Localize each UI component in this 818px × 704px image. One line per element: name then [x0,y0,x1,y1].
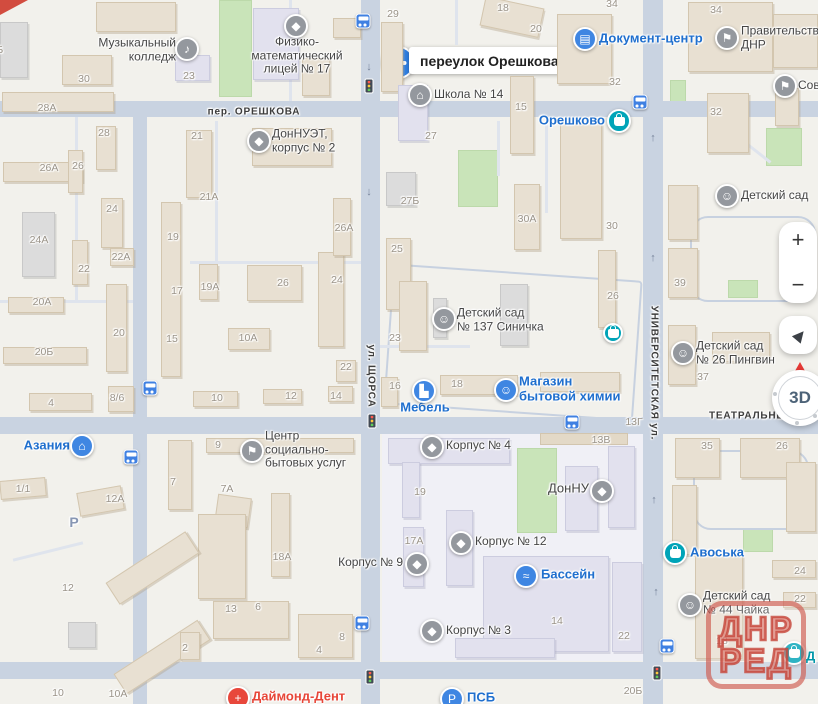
building-number: 26 [277,277,289,289]
building-number: 26А [335,222,354,234]
building-number: 20Б [0,44,3,56]
zoom-controls: + − [779,222,817,303]
bus-stop-icon[interactable] [124,450,139,465]
building-number: 12А [106,493,125,505]
building-number: 22А [112,251,131,263]
traffic-light-icon [368,414,377,429]
compass-3d-button[interactable]: 3D [772,370,818,426]
bus-stop-icon[interactable] [356,14,371,29]
korpus-12-icon[interactable]: ◆ [449,531,473,555]
kindergarten-icon[interactable]: ☺ [715,184,739,208]
green-area [458,150,498,207]
building-number: 26 [776,440,788,452]
building-number: 26 [72,160,84,172]
document-center-icon[interactable]: ▤ [573,27,597,51]
compass-disc[interactable]: 3D [772,370,818,426]
building-number: 13Г [625,416,642,428]
poi-label-korpus-4[interactable]: Корпус № 4 [446,439,511,453]
building-number: 26А [40,162,59,174]
household-chem-store-icon[interactable]: ☺ [494,378,518,402]
building-number: 27Б [401,195,420,207]
donnu-icon[interactable]: ◆ [590,479,614,503]
building [68,622,96,648]
building-number: 24 [794,565,806,577]
building [96,2,176,32]
street-label: УНИВЕРСИТЕТСКАЯ ул. [649,306,660,441]
building-number: 23 [183,70,195,82]
oneway-arrow-icon: ↑ [650,252,656,264]
building-number: 7А [221,483,234,495]
map-canvas[interactable]: переулок Орешкова ДНР РЕД + − ▶ 3D 3028А… [0,0,818,704]
bus-stop-icon[interactable] [633,95,648,110]
building-number: 24А [30,234,49,246]
building [455,638,555,658]
building [168,440,192,510]
building-number: 21 [191,130,203,142]
fizmat-lyceum-17-icon[interactable]: ◆ [284,14,308,38]
poi-label-social-services-center[interactable]: Центрсоциально-бытовых услуг [265,430,346,471]
building-number: 22 [78,263,90,275]
building-number: 9 [215,439,221,451]
building-number: 37 [697,371,709,383]
building-number: 30А [518,213,537,225]
road [133,101,147,704]
building [106,531,200,605]
bassein-icon[interactable]: ≈ [514,564,538,588]
building [707,93,749,153]
poi-label-korpus-12[interactable]: Корпус № 12 [475,535,547,549]
building [399,281,427,351]
poi-label-diamond-dent[interactable]: Даймонд-Дент [252,690,345,704]
poi-label-korpus-9[interactable]: Корпус № 9 [338,556,403,570]
school-14-icon[interactable]: ⌂ [408,83,432,107]
poi-label-korpus-3[interactable]: Корпус № 3 [446,624,511,638]
parking-label: Р [69,514,78,530]
building-number: 17 [171,285,183,297]
building-number: 30 [78,73,90,85]
minor-path [455,0,458,45]
callout-label: переулок Орешкова [420,53,559,69]
social-services-center-icon[interactable]: ⚑ [240,439,264,463]
bus-stop-icon[interactable] [565,415,580,430]
watermark-line2: РЕД [719,645,793,677]
building-number: 1/1 [16,483,31,495]
poi-label-kindergarten-137-sinichka[interactable]: Детский сад№ 137 Синичка [457,306,544,333]
building-number: 34 [710,4,722,16]
building-number: 7 [170,476,176,488]
poi-label-household-chem-store[interactable]: Магазинбытовой химии [519,374,620,403]
building-number: 18А [273,551,292,563]
compass-tick [773,392,777,396]
building [786,462,816,532]
oneway-arrow-icon: ↑ [653,586,659,598]
building [0,22,28,78]
mebel-icon[interactable]: ▙ [412,379,436,403]
building-number: 19 [167,231,179,243]
building-number: 16 [389,380,401,392]
building-number: 28 [98,127,110,139]
poi-label-kindergarten-26-pingvin[interactable]: Детский сад№ 26 Пингвин [696,339,775,366]
bus-stop-icon[interactable] [355,616,370,631]
building-number: 30 [606,220,618,232]
building [510,76,534,154]
korpus-9-icon[interactable]: ◆ [405,552,429,576]
compass-tick [795,421,799,425]
avoska-icon[interactable] [663,541,687,565]
poi-label-kindergarten[interactable]: Детский сад [741,189,808,203]
building-number: 15 [166,333,178,345]
shop-pin-icon[interactable] [603,323,623,343]
building-number: 4 [48,397,54,409]
bag-icon [608,329,619,338]
poi-label-oreshkovo-store[interactable]: Орешково [539,114,605,129]
building-number: 8 [339,631,345,643]
korpus-4-icon[interactable]: ◆ [420,435,444,459]
building [668,248,698,298]
building [668,185,698,240]
building-number: 12 [62,582,74,594]
building-number: 10А [109,688,128,700]
location-arrow-icon: ▶ [789,325,810,345]
building-number: 2 [182,642,188,654]
poi-label-d-store[interactable]: Д [806,650,815,665]
building-number: 20А [33,296,52,308]
sovet-icon[interactable]: ⚑ [773,74,797,98]
building-number: 22 [618,630,630,642]
building-number: 20 [113,327,125,339]
building-number: 18 [451,378,463,390]
bag-icon [670,549,681,558]
building-number: 14 [330,390,342,402]
building-number: 34 [606,0,618,10]
oneway-arrow-icon: ↑ [650,132,656,144]
compass-tick [813,414,817,418]
building-number: 20 [530,23,542,35]
building-number: 25 [391,243,403,255]
building [247,265,302,301]
callout-box[interactable]: переулок Орешкова [409,47,570,74]
map-artifact-red-corner [0,0,28,15]
green-area [743,528,773,552]
building-number: 29 [387,8,399,20]
building [198,514,246,599]
poi-label-bassein[interactable]: Бассейн [541,568,595,583]
building-number: 17А [405,535,424,547]
oneway-arrow-icon: ↓ [366,186,372,198]
building-number: 24 [106,203,118,215]
building [318,252,344,347]
building [29,393,92,411]
poi-label-government-dnr[interactable]: ПравительствоДНР [741,24,818,51]
building-number: 24 [331,274,343,286]
building [381,22,403,92]
building-number: 10 [211,392,223,404]
bus-stop-icon[interactable] [660,639,675,654]
building-number: 27 [425,130,437,142]
zoom-out-button[interactable]: − [792,274,805,296]
building-number: 13 [225,603,237,615]
building-number: 12 [285,390,297,402]
watermark: ДНР РЕД [706,601,806,689]
green-area [219,0,252,97]
traffic-light-icon [366,670,375,685]
poi-label-document-center[interactable]: Документ-центр [599,32,703,47]
government-dnr-icon[interactable]: ⚑ [715,26,739,50]
building-number: 39 [674,277,686,289]
music-college-icon[interactable]: ♪ [175,37,199,61]
zoom-in-button[interactable]: + [792,229,805,251]
poi-label-avoska[interactable]: Авоська [690,546,744,561]
kindergarten-137-sinichka-icon[interactable]: ☺ [432,307,456,331]
poi-label-donnuet-korpus-2[interactable]: ДонНУЭТ,корпус № 2 [272,127,335,154]
azania-icon[interactable]: ⌂ [70,434,94,458]
bag-icon [614,117,625,126]
building-number: 23 [389,332,401,344]
building [2,92,114,112]
psb-icon[interactable]: Р [440,687,464,704]
green-area [670,80,686,102]
kindergarten-26-pingvin-icon[interactable]: ☺ [671,341,695,365]
geolocation-button[interactable]: ▶ [779,316,817,354]
building [540,433,628,445]
building-number: 32 [609,76,621,88]
poi-label-donnu[interactable]: ДонНУ [548,482,589,497]
building-number: 18 [497,2,509,14]
street-label: пер. ОРЕШКОВА [208,107,301,118]
building-number: 15 [515,101,527,113]
bus-stop-icon[interactable] [143,381,158,396]
building-number: 32 [710,106,722,118]
oreshkovo-store-icon[interactable] [607,109,631,133]
building-number: 20Б [624,685,643,697]
building-number: 19 [414,486,426,498]
building-number: 8/6 [110,392,125,404]
diamond-dent-icon[interactable]: + [226,686,250,704]
donnuet-korpus-2-icon[interactable]: ◆ [247,129,271,153]
building-number: 6 [255,601,261,613]
poi-label-psb[interactable]: ПСБ [467,691,495,704]
watermark-line1: ДНР [718,613,793,645]
korpus-3-icon[interactable]: ◆ [420,619,444,643]
minor-path [13,541,84,561]
building-number: 22 [340,361,352,373]
building-number: 10А [239,332,258,344]
building-number: 19А [201,281,220,293]
building-number: 4 [316,644,322,656]
building-number: 14 [551,615,563,627]
building [271,493,290,577]
traffic-light-icon [653,666,662,681]
minor-path [497,121,500,176]
building [675,438,720,478]
building-number: 35 [701,440,713,452]
minor-path [545,121,548,213]
poi-label-azania[interactable]: Азания [24,439,70,454]
poi-label-fizmat-lyceum-17[interactable]: Физико-математическийлицей № 17 [251,36,342,77]
building [598,250,616,328]
road [0,417,818,434]
building-number: 10 [52,687,64,699]
building-number: 20Б [35,346,54,358]
kindergarten-44-chaika-icon[interactable]: ☺ [678,593,702,617]
building-number: 26 [607,290,619,302]
building-number: 21А [200,191,219,203]
compass-3d-label: 3D [789,388,811,408]
poi-label-school-14[interactable]: Школа № 14 [434,88,503,102]
poi-label-music-college[interactable]: Музыкальныйколледж [98,36,176,63]
traffic-light-icon [365,79,374,94]
building [560,119,602,239]
oneway-arrow-icon: ↑ [651,494,657,506]
street-label: ул. ЩОРСА [366,344,377,407]
building-number: 28А [38,102,57,114]
building-number: 13В [592,434,611,446]
oneway-arrow-icon: ↓ [366,61,372,73]
poi-label-sovet[interactable]: Сов [798,79,818,93]
